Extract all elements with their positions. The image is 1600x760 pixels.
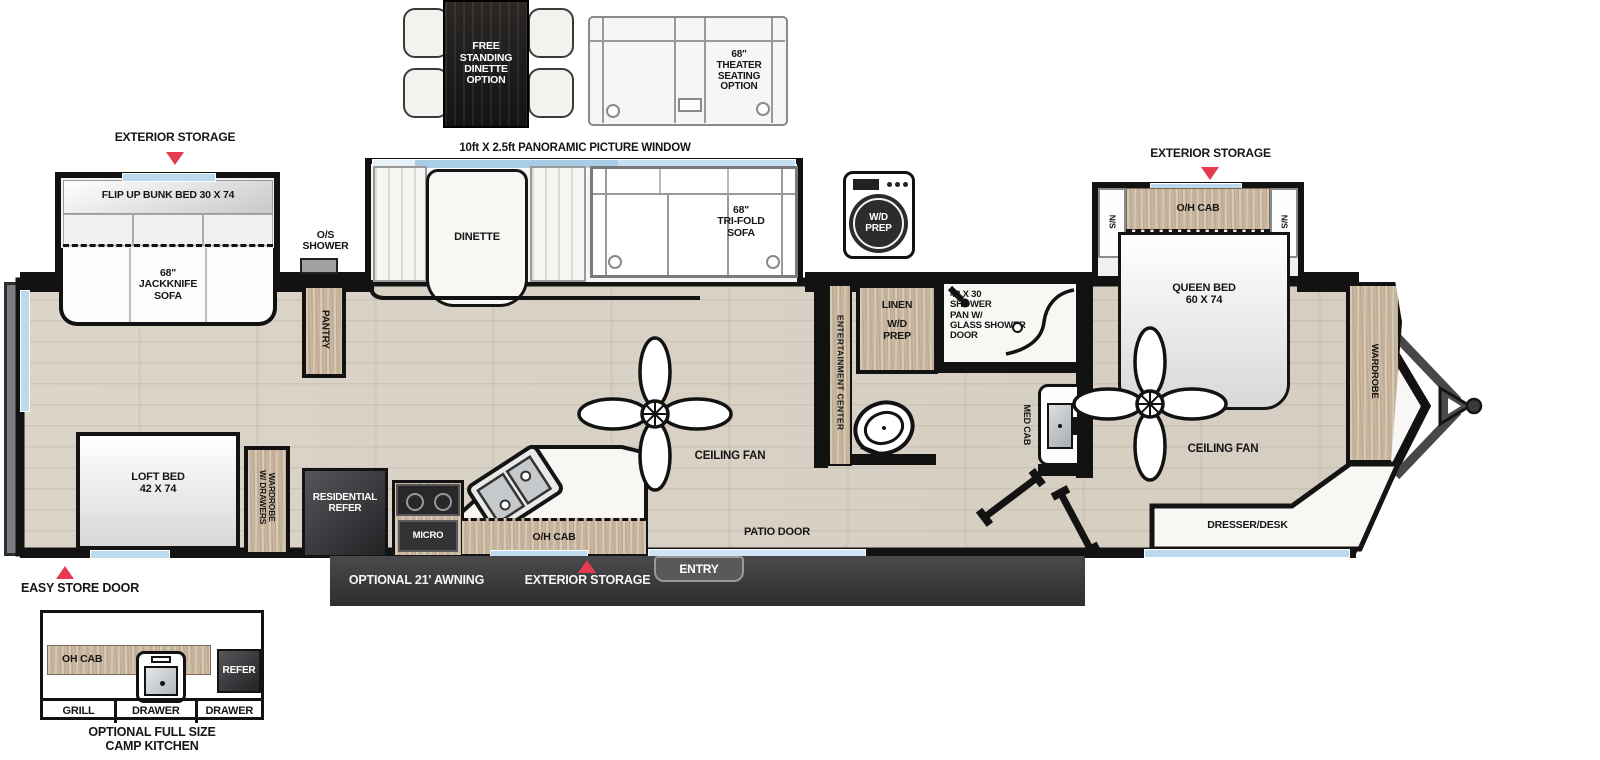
camp-sink (136, 651, 186, 703)
camp-grill-cell: GRILL (43, 701, 117, 723)
loft-window (90, 550, 170, 559)
camp-drawer-left-label: DRAWER (132, 706, 180, 718)
rear-wall-window (20, 290, 30, 412)
trifold-sofa: 68" TRI-FOLD SOFA (590, 166, 798, 278)
linen-wd-prep-label: W/D PREP (860, 319, 934, 342)
washer-knob (887, 182, 892, 187)
sofa-seat-cushion: 68" JACKKNIFE SOFA (131, 248, 206, 322)
shower-drain (1012, 322, 1023, 333)
queen-bed: QUEEN BED 60 X 74 (1118, 232, 1290, 410)
residential-refer-label: RESIDENTIAL REFER (305, 493, 385, 515)
nightstand-left-label: N/S (1107, 207, 1116, 237)
awning-label: OPTIONAL 21' AWNING (344, 574, 489, 588)
entry-tab: ENTRY (654, 556, 744, 582)
sofa-seat-cushion (63, 248, 131, 322)
rear-storage-label: EXTERIOR STORAGE (95, 131, 255, 144)
entertainment-center-label: ENTERTAINMENT CENTER (835, 284, 844, 462)
washer-knob (903, 182, 908, 187)
flip-bunk-label: FLIP UP BUNK BED 30 X 74 (64, 190, 272, 201)
bedroom-bottom-window (1144, 549, 1350, 558)
washer-icon: W/D PREP (843, 171, 915, 259)
outside-shower-box (300, 258, 338, 274)
sofa-back-cushion (134, 215, 204, 245)
bottom-storage-label: EXTERIOR STORAGE (520, 574, 655, 588)
cooktop-icon (396, 484, 460, 516)
trifold-back (593, 169, 795, 195)
faucet-icon (1073, 417, 1079, 435)
cupholder (606, 104, 620, 118)
dinette-bench-left (373, 166, 427, 282)
dinette-chair (528, 68, 574, 118)
front-storage-label: EXTERIOR STORAGE (1128, 147, 1293, 160)
jackknife-sofa-label: 68" JACKKNIFE SOFA (139, 268, 197, 302)
bunk-dashed-line (63, 244, 273, 247)
camp-sink-drain (160, 681, 165, 686)
sink-drain (1058, 424, 1062, 428)
dinette-chair (528, 8, 574, 58)
camp-drawer-cell: DRAWER (117, 701, 198, 723)
wardrobe-drawers-label: WARDROBE W/ DRAWERS (258, 444, 276, 550)
front-wardrobe-label: WARDROBE (1369, 321, 1379, 421)
queen-bed-label: QUEEN BED 60 X 74 (1121, 283, 1287, 307)
flip-bunk-bed: FLIP UP BUNK BED 30 X 74 (63, 180, 273, 214)
sofa-seat-cushion (207, 248, 273, 322)
vanity-sink-icon (1047, 403, 1073, 449)
camp-kitchen: OH CAB REFER GRILL DRAWER DRAWER (40, 610, 264, 720)
triangle-marker-front-storage (1201, 167, 1219, 180)
trifold-armrest (605, 169, 607, 275)
washer-control-panel (853, 179, 879, 190)
burner-icon (406, 493, 424, 511)
loft-bed-label: LOFT BED 42 X 74 (80, 472, 236, 496)
sofa-back-cushion (64, 215, 134, 245)
washer-drum: W/D PREP (849, 194, 908, 253)
floorplan-canvas: FLIP UP BUNK BED 30 X 74 68" JACKKNIFE S… (0, 0, 1600, 760)
camp-sink-basin (144, 666, 178, 696)
kitchen-ohcab-label: O/H CAB (533, 532, 576, 543)
cupholder (756, 102, 770, 116)
theater-arm (602, 18, 604, 123)
residential-refrigerator: RESIDENTIAL REFER (302, 468, 388, 558)
panoramic-window-label: 10ft X 2.5ft PANORAMIC PICTURE WINDOW (425, 142, 725, 154)
camp-ohcab: OH CAB (47, 645, 211, 675)
theater-console-tray (678, 98, 702, 112)
loft-bed: LOFT BED 42 X 74 (76, 432, 240, 550)
med-cab-label: MED CAB (1021, 393, 1031, 457)
dinette-label: DINETTE (454, 232, 500, 244)
patio-door-label: PATIO DOOR (712, 527, 842, 539)
camp-drawer-band: GRILL DRAWER DRAWER (43, 698, 261, 723)
pantry-label: PANTRY (319, 287, 330, 371)
camp-grill-label: GRILL (62, 706, 94, 718)
trifold-sofa-label: 68" TRI-FOLD SOFA (691, 205, 791, 239)
burner-icon (434, 493, 452, 511)
dresser-desk-counter (1152, 464, 1398, 549)
wall-entertainment (814, 282, 828, 468)
living-fan-label: CEILING FAN (660, 450, 800, 462)
dresser-desk-label: DRESSER/DESK (1180, 520, 1315, 531)
triangle-marker-easy-store (56, 566, 74, 579)
shower-label: 48 X 30 SHOWER PAN W/ GLASS SHOWER DOOR (950, 290, 1046, 341)
triangle-marker-bottom-storage (578, 560, 596, 573)
cupholder (608, 255, 622, 269)
bunk-window (122, 173, 216, 182)
bedroom-fan-label: CEILING FAN (1158, 443, 1288, 455)
theater-seating: 68" THEATER SEATING OPTION (588, 16, 788, 126)
dinette-option-label: FREE STANDING DINETTE OPTION (460, 41, 512, 86)
trifold-divider (667, 193, 669, 275)
camp-drawer-right-label: DRAWER (205, 706, 253, 718)
outside-shower-label: O/S SHOWER (278, 230, 373, 253)
triangle-marker-rear-storage (166, 152, 184, 165)
washer-knob (895, 182, 900, 187)
jackknife-sofa-seat: 68" JACKKNIFE SOFA (59, 248, 277, 326)
dinette-bench-right (530, 166, 586, 282)
free-standing-dinette-table: FREE STANDING DINETTE OPTION (443, 0, 529, 128)
jackknife-sofa-back (63, 214, 273, 246)
cupholder (766, 255, 780, 269)
kitchen-overhead-cabinet: O/H CAB (462, 518, 646, 554)
medicine-cabinet-vanity (1038, 384, 1080, 466)
entry-label: ENTRY (679, 563, 718, 576)
linen-closet: LINEN W/D PREP (856, 284, 938, 374)
camp-refer-label: REFER (223, 666, 256, 677)
microwave: MICRO (398, 520, 458, 552)
theater-back-band (590, 40, 785, 42)
wall-below-shower (938, 362, 1084, 373)
camp-kitchen-caption: OPTIONAL FULL SIZE CAMP KITCHEN (40, 726, 264, 753)
theater-console-line (674, 18, 676, 123)
camp-refer: REFER (217, 649, 261, 693)
dinette-table: DINETTE (426, 169, 528, 307)
theater-option-label: 68" THEATER SEATING OPTION (706, 50, 772, 93)
camp-faucet-panel (151, 656, 171, 663)
washer-drum-ring (853, 198, 904, 249)
camp-drawer-cell: DRAWER (198, 701, 261, 723)
sofa-back-cushion (204, 215, 272, 245)
linen-label: LINEN (860, 300, 934, 311)
easy-store-label: EASY STORE DOOR (0, 582, 160, 596)
bedroom-overhead-cabinet: O/H CAB (1126, 188, 1270, 230)
micro-label: MICRO (413, 531, 444, 541)
bedroom-ohcab-label: O/H CAB (1177, 203, 1220, 214)
